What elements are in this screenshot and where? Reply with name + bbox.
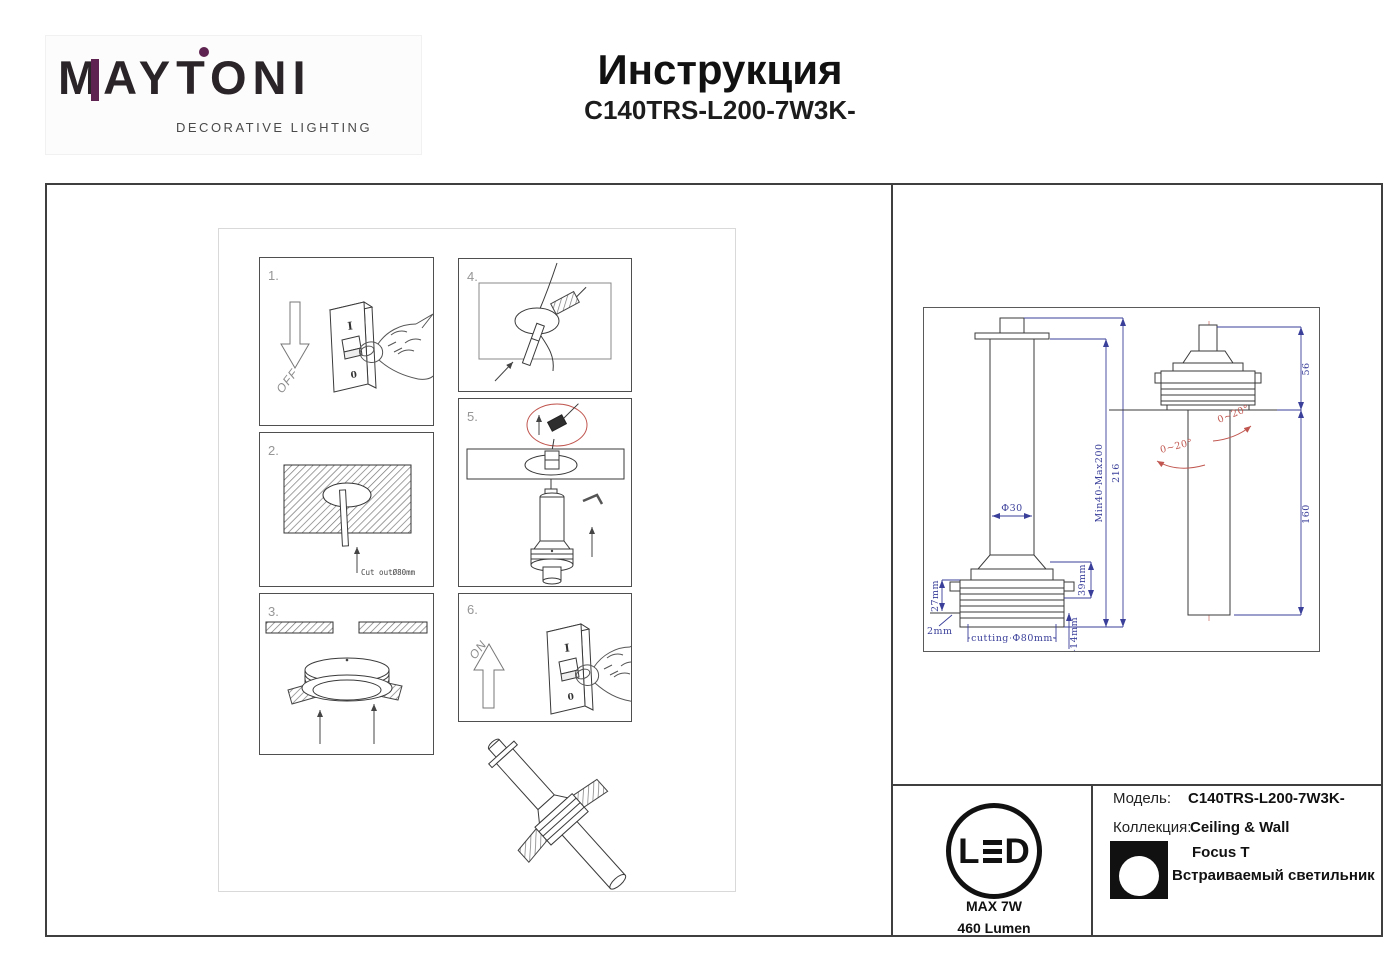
led-letter-d: D xyxy=(1005,834,1030,869)
fixture-type: Встраиваемый светильник xyxy=(1172,867,1375,884)
vertical-divider xyxy=(891,183,893,937)
cut-hole xyxy=(323,483,371,507)
dim-2mm: 2mm xyxy=(927,626,953,637)
switch-o-label: 0 xyxy=(350,370,357,381)
dim-56: 56 xyxy=(1301,362,1312,375)
step-4-number: 4. xyxy=(467,269,478,284)
switch-o-label: 0 xyxy=(567,692,574,703)
dim-160: 160 xyxy=(1301,504,1312,524)
logo-tagline: DECORATIVE LIGHTING xyxy=(176,120,372,135)
document-header: Инструкция C140TRS-L200-7W3K- xyxy=(380,48,1060,126)
model-value: C140TRS-L200-7W3K- xyxy=(1188,790,1345,807)
step-2-cut-hole: 2. Cut outØ80mm xyxy=(259,432,434,587)
step-4-pull-wire: 4. xyxy=(458,258,632,392)
dim-39mm: 39mm xyxy=(1077,564,1088,596)
allen-key xyxy=(583,495,602,504)
dim-min-max: Min40-Max200 xyxy=(1094,443,1105,522)
mounting-ring xyxy=(288,658,402,704)
light-switch: I 0 xyxy=(330,302,376,392)
step-2-number: 2. xyxy=(268,443,279,458)
logo-letter-m: M xyxy=(58,54,103,101)
max-power-label: MAX 7W xyxy=(926,898,1062,914)
dim-216: 216 xyxy=(1111,463,1122,483)
step-5-connect-and-mount: 5. xyxy=(458,398,632,587)
step-3-insert-ring: 3. xyxy=(259,593,434,755)
series-name: Focus T xyxy=(1192,844,1250,861)
info-divider xyxy=(1091,786,1093,935)
step-5-number: 5. xyxy=(467,409,478,424)
step-6-number: 6. xyxy=(467,602,478,617)
step-3-number: 3. xyxy=(268,604,279,619)
mount-bracket xyxy=(545,451,559,469)
spot-fixture xyxy=(531,479,573,584)
led-letter-l: L xyxy=(958,834,979,869)
instruction-sheet: MAYTONI DECORATIVE LIGHTING Инструкция C… xyxy=(0,0,1385,968)
off-label: OFF xyxy=(273,366,301,396)
front-view-drawing xyxy=(930,318,1074,627)
dim-diameter-30: Ф30 xyxy=(1001,503,1022,514)
collection-label: Коллекция: xyxy=(1113,819,1191,836)
step-1-switch-off: 1. OFF I 0 xyxy=(259,257,434,426)
collection-value: Ceiling & Wall xyxy=(1190,819,1289,836)
dim-cutting-80mm: cutting Ф80mm xyxy=(971,633,1053,644)
step-1-number: 1. xyxy=(268,268,279,283)
dim-2-14mm: 2-14mm xyxy=(1069,617,1080,651)
dim-27mm: 27mm xyxy=(930,580,941,612)
model-label: Модель: xyxy=(1113,790,1171,807)
logo-wordmark: MAYTONI xyxy=(58,54,312,101)
lumen-label: 460 Lumen xyxy=(926,920,1062,936)
assembled-fixture-drawing xyxy=(455,723,660,908)
ceiling-bar-left xyxy=(266,622,333,633)
ceiling-bar-right xyxy=(359,622,427,633)
page-title: Инструкция xyxy=(380,48,1060,92)
wire-connector xyxy=(547,404,584,431)
maytoni-logo: MAYTONI DECORATIVE LIGHTING xyxy=(45,35,422,155)
led-logo: L D xyxy=(946,803,1042,899)
cut-out-label: Cut outØ80mm xyxy=(361,568,416,577)
installed-view-drawing: 0~20° 0~20° 56 160 xyxy=(1109,321,1312,621)
collection-icon xyxy=(1110,841,1168,899)
arrow-down-icon xyxy=(281,302,309,368)
horizontal-divider xyxy=(893,784,1383,786)
logo-letters: AYTONI xyxy=(103,54,311,101)
led-e-bars xyxy=(983,840,1002,863)
step-6-switch-on: 6. ON I 0 xyxy=(458,593,632,722)
model-code: C140TRS-L200-7W3K- xyxy=(380,95,1060,126)
dimension-drawings: Ф30 27mm 2mm cutting Ф80mm 39mm 2-14mm xyxy=(923,307,1320,652)
